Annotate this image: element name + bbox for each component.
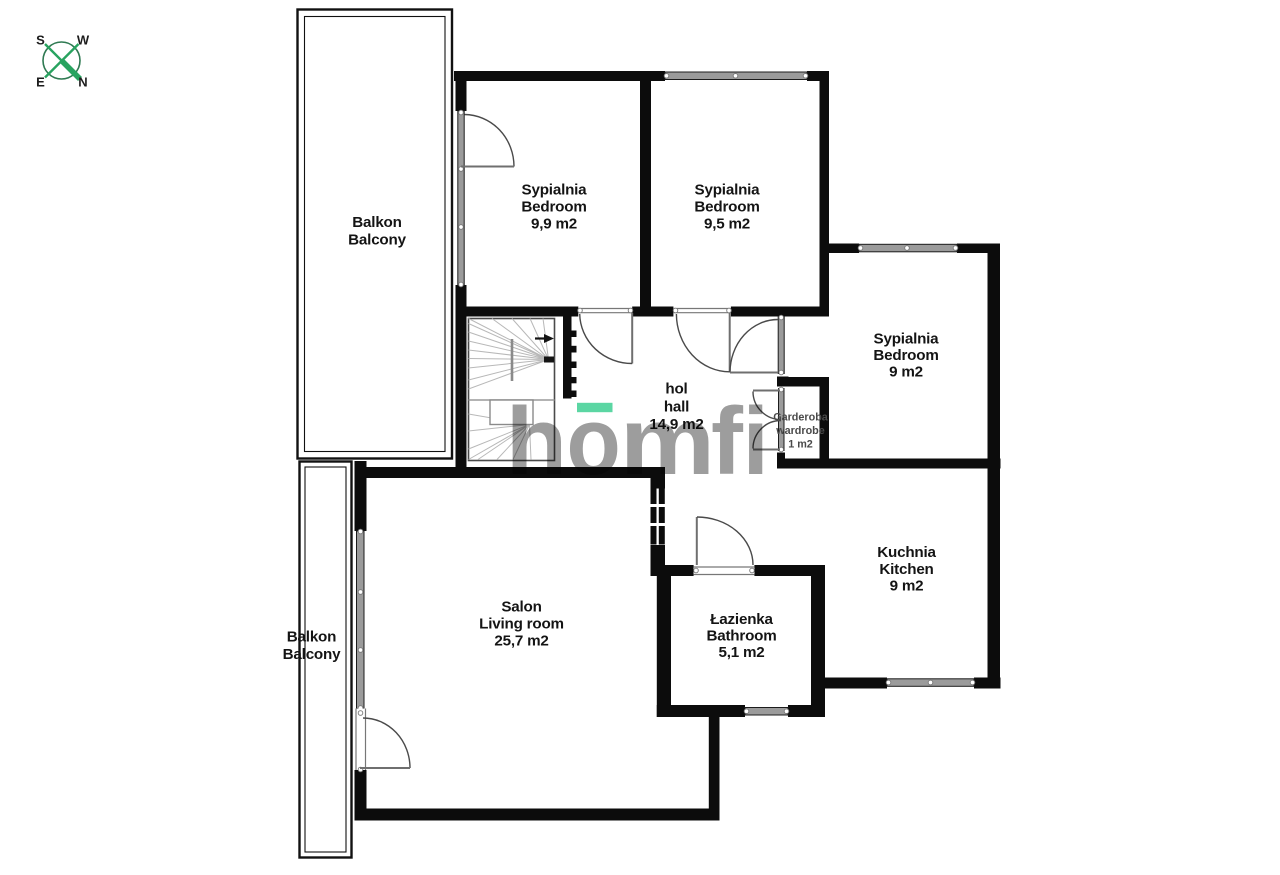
svg-text:h: h (506, 387, 568, 494)
svg-text:Łazienka: Łazienka (710, 611, 773, 628)
svg-text:Balkon: Balkon (352, 214, 401, 231)
svg-text:9 m2: 9 m2 (889, 364, 923, 381)
svg-text:25,7 m2: 25,7 m2 (494, 633, 548, 650)
svg-text:9,9 m2: 9,9 m2 (531, 216, 577, 233)
svg-text:S: S (36, 32, 45, 47)
svg-text:Bedroom: Bedroom (521, 199, 586, 216)
svg-text:9,5 m2: 9,5 m2 (704, 216, 750, 233)
svg-text:1 m2: 1 m2 (788, 438, 813, 450)
svg-text:N: N (78, 74, 87, 89)
svg-text:i: i (742, 388, 769, 495)
svg-text:W: W (77, 32, 90, 47)
svg-text:Sypialnia: Sypialnia (874, 331, 940, 348)
svg-text:5,1 m2: 5,1 m2 (718, 644, 764, 661)
svg-text:9 m2: 9 m2 (890, 578, 924, 595)
svg-text:Living room: Living room (479, 616, 564, 633)
svg-text:Bathroom: Bathroom (706, 628, 776, 645)
svg-text:m: m (620, 387, 715, 495)
svg-text:wardrobe: wardrobe (775, 425, 825, 437)
svg-text:Bedroom: Bedroom (873, 347, 938, 364)
svg-text:E: E (36, 74, 45, 89)
svg-text:Salon: Salon (501, 599, 541, 616)
svg-text:Kuchnia: Kuchnia (877, 544, 936, 561)
svg-text:Garderoba: Garderoba (773, 412, 829, 424)
svg-text:f: f (711, 388, 744, 495)
svg-text:Balkon: Balkon (287, 629, 336, 646)
svg-text:Sypialnia: Sypialnia (522, 181, 588, 198)
svg-text:Sypialnia: Sypialnia (695, 181, 761, 198)
svg-text:Balcony: Balcony (348, 232, 406, 249)
svg-text:Kitchen: Kitchen (879, 561, 933, 578)
svg-text:Bedroom: Bedroom (694, 199, 759, 216)
svg-text:Balcony: Balcony (283, 646, 341, 663)
